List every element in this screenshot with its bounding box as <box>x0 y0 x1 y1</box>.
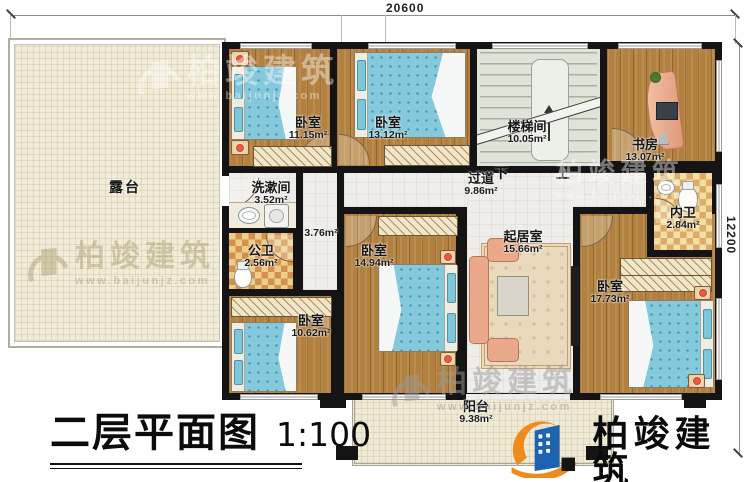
pillow <box>234 329 243 353</box>
right-dimension-line <box>739 44 740 456</box>
pillow <box>234 360 243 384</box>
nightstand <box>694 286 711 300</box>
brand-logo-icon <box>502 416 587 478</box>
double-bed <box>378 264 458 352</box>
room-area: 3.76m² <box>298 228 344 240</box>
pillow <box>703 309 712 340</box>
coffee-table <box>497 276 529 316</box>
room-area: 13.12m² <box>360 130 416 142</box>
sink <box>657 180 675 195</box>
nightstand <box>231 140 249 155</box>
floor-plan-canvas: 20600 12200 <box>0 0 750 482</box>
nightstand <box>440 250 456 264</box>
room-area: 10.62m² <box>288 328 334 340</box>
plan-scale: 1:100 <box>276 415 371 454</box>
room-label-inner-bath: 内卫 2.84m² <box>658 206 708 232</box>
top-dimension-line <box>10 15 737 16</box>
window <box>618 43 702 49</box>
pillow <box>357 60 366 90</box>
stairs-up-label: 上 <box>556 163 570 183</box>
room-label-bedroom5: 卧室 17.73m² <box>584 280 636 306</box>
title-block: 二层平面图 1:100 本层建筑面积：159.73m²层高：3.3m <box>50 400 371 482</box>
room-area: 15.66m² <box>492 244 554 256</box>
room-area: 3.52m² <box>240 195 302 207</box>
plan-title: 二层平面图 <box>50 400 260 458</box>
room-name: 露台 <box>90 180 160 195</box>
dimension-extension <box>10 15 11 38</box>
room-stairwell <box>477 49 600 166</box>
top-dimension-value: 20600 <box>386 1 424 15</box>
stairs-down-label: 下 <box>494 163 508 183</box>
brand-logo: 柏竣建筑 www.baijunjz.com <box>502 416 750 482</box>
room-label-bedroom2: 卧室 13.12m² <box>360 116 416 142</box>
tv <box>571 266 579 346</box>
armchair <box>487 338 519 362</box>
room-area: 2.56m² <box>236 258 286 270</box>
room-label-hallway: 3.76m² <box>298 228 344 240</box>
wardrobe <box>378 216 458 236</box>
room-label-bedroom4: 卧室 14.94m² <box>346 244 402 270</box>
room-label-study: 书房 13.07m² <box>616 138 674 164</box>
window <box>368 43 456 49</box>
pillow <box>447 313 456 344</box>
nightstand <box>231 51 249 66</box>
room-area: 17.73m² <box>584 294 636 306</box>
bed-headboard <box>444 265 457 351</box>
room-label-balcony: 阳台 9.38m² <box>448 400 504 426</box>
pillow <box>447 273 456 304</box>
dimension-extension <box>341 15 342 42</box>
room-area: 10.05m² <box>496 134 558 146</box>
sink <box>238 207 260 224</box>
window <box>492 43 588 49</box>
room-area: 11.15m² <box>282 130 334 142</box>
wall-segment <box>647 250 712 257</box>
bed-headboard <box>232 323 245 391</box>
brand-name: 柏竣建筑 <box>593 416 750 482</box>
window <box>600 394 682 400</box>
room-area: 13.07m² <box>616 152 674 164</box>
room-area: 14.94m² <box>346 258 402 270</box>
room-label-public-bath: 公卫 2.56m² <box>236 244 286 270</box>
plant <box>650 72 661 83</box>
room-label-bedroom3: 卧室 10.62m² <box>288 314 334 340</box>
room-label-stairwell: 楼梯间 10.05m² <box>496 120 558 146</box>
room-label-living: 起居室 15.66m² <box>492 230 554 256</box>
pillow <box>234 107 243 133</box>
room-label-washroom: 洗漱间 3.52m² <box>240 181 302 207</box>
room-label-bedroom1: 卧室 11.15m² <box>282 116 334 142</box>
title-underline <box>50 463 302 469</box>
dimension-tick <box>6 9 16 19</box>
room-area: 2.84m² <box>658 220 708 232</box>
window <box>716 298 722 380</box>
column <box>684 396 706 408</box>
sofa <box>469 256 489 344</box>
nightstand <box>440 352 456 366</box>
room-area: 9.38m² <box>448 414 504 426</box>
wardrobe <box>253 146 332 167</box>
pillow <box>234 74 243 100</box>
nightstand <box>688 374 705 388</box>
wardrobe <box>384 145 470 166</box>
room-label-terrace: 露台 <box>90 180 160 195</box>
bed-mattress <box>379 265 444 351</box>
terrace-door-opening <box>222 176 229 206</box>
balcony-window <box>362 394 446 400</box>
washing-machine <box>264 204 289 228</box>
title-row: 二层平面图 1:100 <box>50 400 371 458</box>
computer-monitor <box>656 102 678 120</box>
window <box>716 184 722 248</box>
wall-segment <box>647 173 654 257</box>
plan-info: 本层建筑面积：159.73m²层高：3.3m <box>50 478 371 482</box>
window <box>716 60 722 152</box>
dimension-extension <box>385 15 386 42</box>
window <box>240 43 312 49</box>
room-area: 9.86m² <box>455 186 507 198</box>
brand-logo-text: 柏竣建筑 www.baijunjz.com <box>593 416 750 482</box>
bed-headboard <box>232 67 245 139</box>
right-dimension-value: 12200 <box>724 216 738 254</box>
